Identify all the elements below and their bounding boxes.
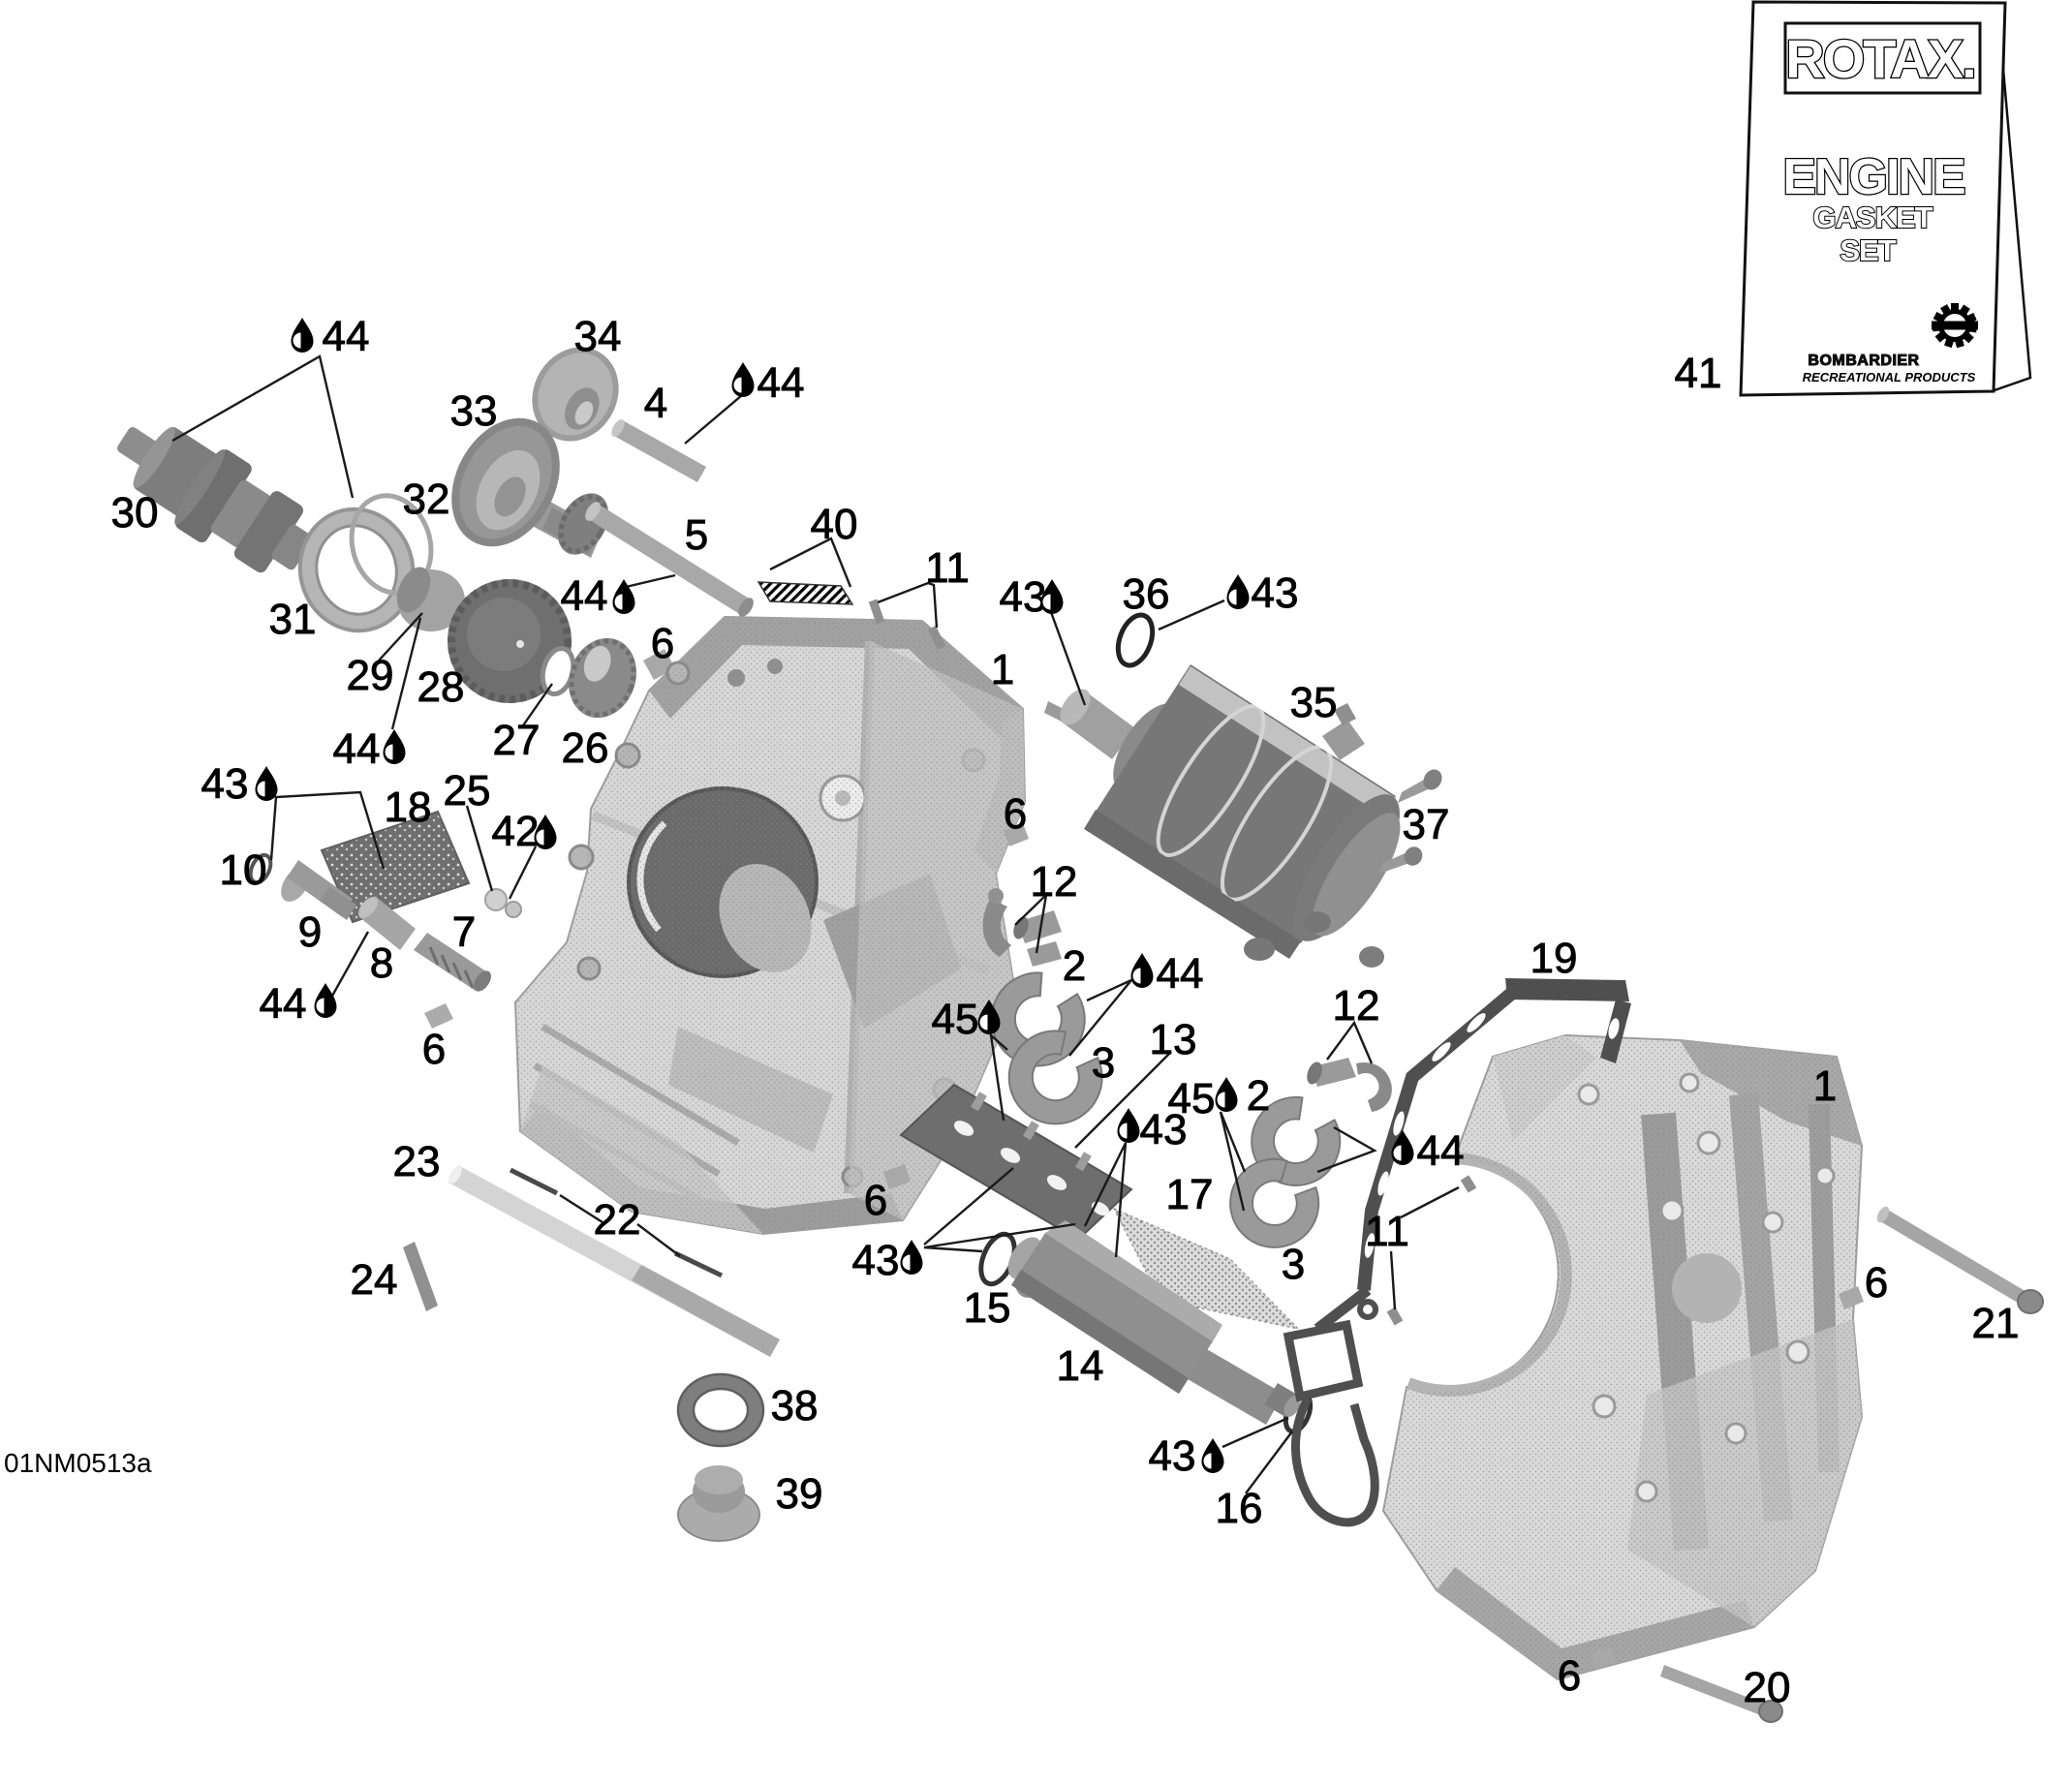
- svg-text:3: 3: [1092, 1039, 1115, 1087]
- svg-text:6: 6: [864, 1177, 887, 1224]
- svg-text:45: 45: [1168, 1075, 1216, 1123]
- svg-text:9: 9: [298, 908, 322, 956]
- svg-text:36: 36: [1123, 570, 1170, 618]
- svg-text:14: 14: [1057, 1342, 1104, 1390]
- svg-text:27: 27: [493, 717, 541, 764]
- svg-text:44: 44: [260, 980, 307, 1028]
- svg-text:22: 22: [594, 1196, 641, 1244]
- svg-text:18: 18: [385, 784, 432, 831]
- svg-text:6: 6: [422, 1026, 446, 1073]
- svg-text:30: 30: [111, 489, 159, 537]
- svg-text:6: 6: [1865, 1259, 1888, 1307]
- svg-text:44: 44: [758, 359, 805, 407]
- svg-text:17: 17: [1166, 1171, 1214, 1218]
- svg-text:44: 44: [561, 572, 608, 620]
- svg-text:23: 23: [393, 1138, 441, 1185]
- svg-text:39: 39: [776, 1470, 823, 1518]
- svg-text:33: 33: [450, 387, 498, 435]
- svg-text:25: 25: [444, 767, 491, 815]
- svg-text:11: 11: [1365, 1208, 1409, 1255]
- svg-text:19: 19: [1531, 935, 1578, 982]
- svg-text:RECREATIONAL PRODUCTS: RECREATIONAL PRODUCTS: [1803, 370, 1976, 384]
- svg-text:6: 6: [1004, 790, 1027, 838]
- svg-text:29: 29: [347, 652, 394, 699]
- svg-text:41: 41: [1675, 350, 1722, 397]
- svg-text:12: 12: [1333, 982, 1380, 1030]
- svg-text:37: 37: [1403, 801, 1450, 848]
- svg-text:38: 38: [771, 1382, 819, 1430]
- svg-text:44: 44: [1417, 1127, 1465, 1175]
- svg-text:12: 12: [1031, 858, 1078, 906]
- svg-text:40: 40: [811, 501, 858, 548]
- svg-text:6: 6: [651, 620, 674, 667]
- svg-text:1: 1: [991, 646, 1014, 693]
- svg-text:10: 10: [220, 846, 267, 894]
- svg-text:20: 20: [1744, 1664, 1791, 1711]
- svg-text:44: 44: [323, 313, 370, 360]
- svg-text:16: 16: [1216, 1485, 1263, 1532]
- svg-text:44: 44: [1157, 950, 1204, 998]
- svg-text:BOMBARDIER: BOMBARDIER: [1808, 353, 1919, 369]
- svg-text:35: 35: [1290, 679, 1338, 726]
- svg-text:32: 32: [403, 476, 450, 523]
- svg-text:GASKET: GASKET: [1812, 200, 1933, 234]
- svg-text:43: 43: [1149, 1432, 1196, 1480]
- svg-text:SET: SET: [1840, 233, 1896, 267]
- svg-text:26: 26: [562, 724, 609, 772]
- svg-text:2: 2: [1247, 1072, 1270, 1120]
- svg-text:ENGINE: ENGINE: [1782, 149, 1964, 205]
- svg-text:43: 43: [1000, 573, 1047, 621]
- svg-text:43: 43: [1252, 569, 1299, 617]
- svg-text:45: 45: [932, 996, 979, 1043]
- svg-text:42: 42: [492, 808, 540, 855]
- svg-text:3: 3: [1282, 1241, 1305, 1288]
- svg-text:43: 43: [201, 760, 249, 808]
- svg-text:7: 7: [452, 908, 476, 956]
- svg-text:4: 4: [644, 380, 667, 427]
- svg-text:24: 24: [351, 1256, 398, 1304]
- svg-text:11: 11: [925, 544, 970, 592]
- svg-text:2: 2: [1063, 942, 1086, 990]
- svg-text:6: 6: [1558, 1652, 1581, 1700]
- svg-text:5: 5: [685, 511, 708, 559]
- svg-text:21: 21: [1972, 1300, 2020, 1347]
- svg-text:8: 8: [370, 939, 393, 987]
- svg-text:13: 13: [1150, 1016, 1197, 1063]
- svg-text:44: 44: [333, 725, 381, 773]
- svg-text:15: 15: [964, 1284, 1011, 1332]
- svg-text:34: 34: [574, 313, 622, 360]
- svg-text:01NM0513a: 01NM0513a: [4, 1448, 152, 1478]
- svg-text:ROTAX.: ROTAX.: [1785, 28, 1974, 89]
- svg-text:1: 1: [1813, 1062, 1837, 1110]
- svg-text:28: 28: [417, 663, 465, 711]
- svg-text:43: 43: [852, 1237, 900, 1284]
- svg-text:31: 31: [269, 596, 317, 643]
